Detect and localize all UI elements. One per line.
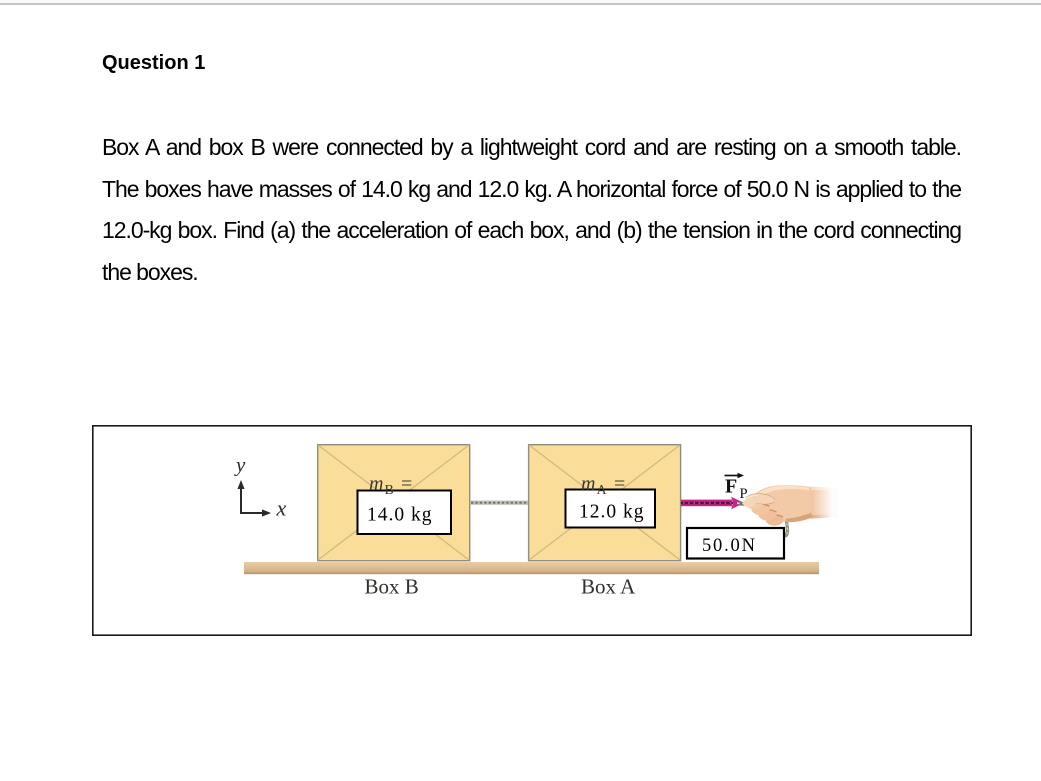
svg-text:x: x [276, 496, 287, 521]
svg-text:F: F [725, 476, 737, 498]
svg-text:12.0 kg: 12.0 kg [579, 502, 645, 523]
svg-text:y: y [234, 453, 246, 477]
svg-text:P: P [740, 486, 748, 502]
svg-text:Box A: Box A [581, 575, 636, 599]
svg-text:50.0N: 50.0N [702, 536, 757, 556]
svg-text:14.0 kg: 14.0 kg [367, 505, 433, 526]
svg-text:Box B: Box B [365, 575, 419, 599]
